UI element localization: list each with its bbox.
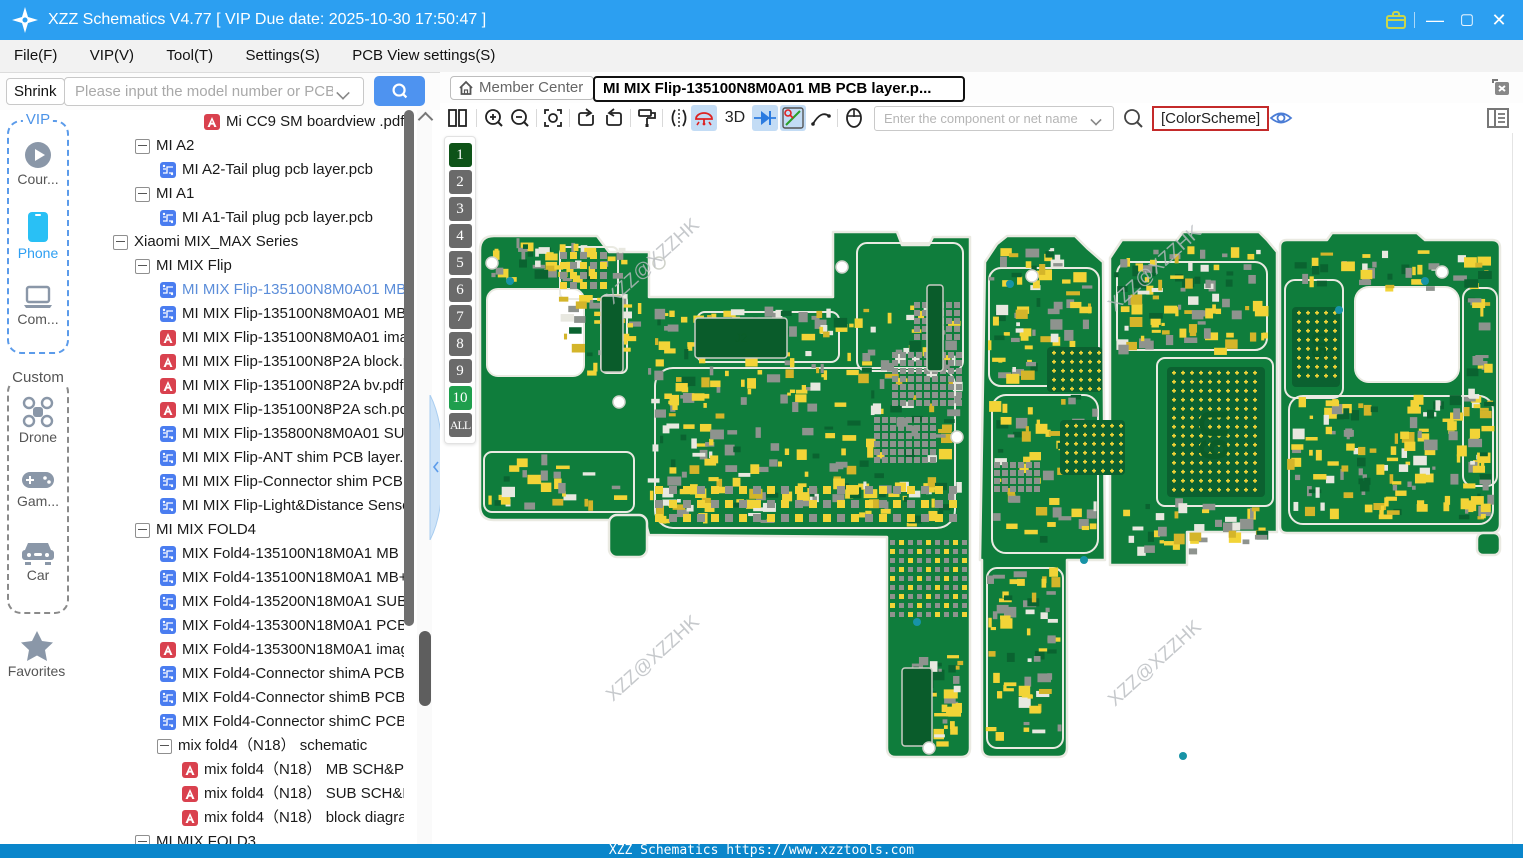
search-button[interactable] (374, 76, 425, 106)
laptop-icon (22, 284, 54, 310)
tree-item-label: MI MIX Flip-135100N8P2A block.pdf (182, 350, 404, 374)
member-center-label: Member Center (479, 79, 583, 96)
collapse-box-icon[interactable] (157, 739, 172, 754)
tree-item-label: Mi CC9 SM boardview .pdf (226, 110, 404, 134)
pdf-file-icon (182, 762, 198, 778)
pcb-file-icon (160, 714, 176, 730)
tree-file-row[interactable]: MI MIX Flip-135100N8M0A01 image.pdf (75, 326, 404, 350)
drone-icon (22, 396, 54, 428)
close-document-icon[interactable] (1490, 78, 1512, 98)
shrink-button[interactable]: Shrink (6, 78, 65, 105)
toolbar-separator (536, 109, 537, 127)
watermark-text: XZZ@XZZHK (602, 611, 704, 705)
tree-file-row[interactable]: MI A2-Tail plug pcb layer.pcb (75, 158, 404, 182)
tree-file-row[interactable]: MIX Fold4-Connector shimC PCB layer.pcb (75, 710, 404, 734)
status-bar: XZZ Schematics https://www.xzztools.com (0, 844, 1523, 858)
menu-pcb-view-settings[interactable]: PCB View settings(S) (338, 40, 509, 72)
tree-item-label: MI A2-Tail plug pcb layer.pcb (182, 158, 373, 182)
titlebar-separator (1414, 12, 1415, 28)
menu-bar: File(F) VIP(V) Tool(T) Settings(S) PCB V… (0, 40, 1523, 73)
category-sidebar: VIP Cour... Phone Com (0, 110, 76, 844)
tree-file-row[interactable]: MI MIX Flip-135100N8P2A sch.pdf (75, 398, 404, 422)
layer-button-7[interactable]: 7 (449, 305, 472, 329)
chip-label-u5: U5 (1307, 332, 1329, 358)
tree-item-label: MIX Fold4-135300N18M0A1 PCB layer.pcb (182, 614, 404, 638)
tree-file-row[interactable]: mix fold4（N18） MB SCH&PCB (75, 758, 404, 782)
menu-tool[interactable]: Tool(T) (152, 40, 227, 72)
tree-item-label: MI A2 (156, 134, 194, 158)
sidebar-item-phone[interactable]: Phone (9, 210, 67, 261)
tree-folder-row[interactable]: MI MIX Flip (75, 254, 404, 278)
measure-icon[interactable] (780, 105, 806, 131)
gamepad-icon (20, 468, 56, 492)
model-search-box (64, 77, 364, 106)
zoom-in-icon[interactable] (481, 105, 507, 131)
layer-button-2[interactable]: 2 (449, 170, 472, 194)
mirror-flip-icon[interactable] (666, 105, 692, 131)
pcb-file-icon (160, 618, 176, 634)
tree-folder-row[interactable]: MI MIX FOLD3 (75, 830, 404, 844)
pdf-file-icon (160, 354, 176, 370)
sidebar-item-car[interactable]: Car (9, 538, 67, 583)
tree-file-row[interactable]: MI MIX Flip-135800N8M0A01 SUB PCB layer.… (75, 422, 404, 446)
tree-file-row[interactable]: MI MIX Flip-Connector shim PCB layer.pcb (75, 470, 404, 494)
tree-item-label: MI MIX Flip-135800N8M0A01 SUB PCB layer.… (182, 422, 404, 446)
pcb-file-icon (160, 450, 176, 466)
collapse-box-icon[interactable] (135, 139, 150, 154)
collapse-box-icon[interactable] (135, 259, 150, 274)
minimize-button[interactable]: — (1420, 0, 1450, 40)
sidebar-item-label: Favorites (0, 663, 73, 679)
toolbar-separator (630, 109, 631, 127)
menu-file[interactable]: File(F) (0, 40, 71, 72)
pcb-canvas[interactable]: XZZ@XZZHKXZZ@XZZHKXZZ@XZZHKXZZ@XZZHKU9U5… (440, 133, 1523, 844)
tree-file-row[interactable]: MI MIX Flip-135100N8M0A01 MB PCB layer.p… (75, 278, 404, 302)
layer-button-3[interactable]: 3 (449, 197, 472, 221)
pcb-file-icon (160, 306, 176, 322)
tree-item-label: MI MIX FOLD3 (156, 830, 256, 844)
tree-file-row[interactable]: MI MIX Flip-ANT shim PCB layer.pcb (75, 446, 404, 470)
tree-item-label: MIX Fold4-Connector shimC PCB layer.pcb (182, 710, 404, 734)
tree-item-label: Xiaomi MIX_MAX Series (134, 230, 298, 254)
sidebar-item-label: Gam... (9, 493, 67, 509)
pcb-file-icon (160, 570, 176, 586)
tree-folder-row[interactable]: mix fold4（N18） schematic (75, 734, 404, 758)
pdf-file-icon (204, 114, 220, 130)
chip-label-u9: U9 (1191, 409, 1235, 460)
tree-item-label: MIX Fold4-Connector shimB PCB layer.pcb (182, 686, 404, 710)
diode-direction-icon[interactable] (752, 105, 778, 131)
custom-group: Custom Drone Gam... (7, 378, 69, 614)
tree-item-label: mix fold4（N18） schematic (178, 734, 367, 758)
vip-group: VIP Cour... Phone Com (7, 120, 69, 354)
tree-item-label: MI MIX Flip (156, 254, 232, 278)
pcb-file-icon (160, 594, 176, 610)
tree-item-label: MIX Fold4-135100N18M0A1 MB PCB layer.pcb (182, 542, 404, 566)
vip-group-label: VIP (23, 111, 53, 128)
pdf-file-icon (160, 330, 176, 346)
member-center-button[interactable]: Member Center (450, 76, 594, 100)
tree-item-label: MI MIX Flip-135100N8M0A01 MB PCB layer.p… (182, 278, 404, 302)
car-icon (20, 538, 56, 566)
watermark-text: XZZ@XZZHK (1104, 616, 1206, 710)
net-search-box (874, 106, 1114, 131)
collapse-box-icon[interactable] (135, 187, 150, 202)
close-button[interactable]: ✕ (1484, 0, 1514, 40)
tree-item-label: MI A1-Tail plug pcb layer.pcb (182, 206, 373, 230)
pcb-file-icon (160, 666, 176, 682)
pdf-file-icon (160, 642, 176, 658)
sidebar-item-label: Drone (9, 429, 67, 445)
file-tree: Mi CC9 SM boardview .pdfMI A2MI A2-Tail … (75, 110, 404, 844)
tree-folder-row[interactable]: MI A2 (75, 134, 404, 158)
rotate-right-icon[interactable] (601, 105, 627, 131)
pcb-file-icon (160, 690, 176, 706)
pdf-file-icon (160, 378, 176, 394)
pcb-file-icon (160, 162, 176, 178)
title-bar: XZZ Schematics V4.77 [ VIP Due date: 202… (0, 0, 1523, 40)
tree-file-row[interactable]: MIX Fold4-135100N18M0A1 MB+SUB PCB layer… (75, 566, 404, 590)
sidebar-item-favorites[interactable]: Favorites (0, 630, 73, 679)
eye-visibility-icon[interactable] (1268, 105, 1294, 131)
layer-button-6[interactable]: 6 (449, 278, 472, 302)
collapse-box-icon[interactable] (135, 835, 150, 845)
custom-group-label: Custom (9, 369, 67, 386)
zoom-out-icon[interactable] (507, 105, 533, 131)
color-scheme-button[interactable]: [ColorScheme] (1152, 106, 1269, 131)
tree-item-label: MI MIX Flip-Connector shim PCB layer.pcb (182, 470, 404, 494)
play-icon (23, 140, 53, 170)
app-window: XZZ Schematics V4.77 [ VIP Due date: 202… (0, 0, 1523, 858)
tree-item-label: MI MIX Flip-135100N8M0A01 MB+SUB PCB lay… (182, 302, 404, 326)
layer-button-5[interactable]: 5 (449, 251, 472, 275)
tree-item-label: MIX Fold4-135300N18M0A1 image.pdf (182, 638, 404, 662)
component-list-panel-icon[interactable] (1486, 106, 1510, 130)
tree-file-row[interactable]: MIX Fold4-135200N18M0A1 SUB PCB layer.pc… (75, 590, 404, 614)
tree-item-label: MI MIX Flip-Light&Distance Sensor PCB la… (182, 494, 404, 518)
tree-item-label: mix fold4（N18） block diagram (204, 806, 404, 830)
pdf-file-icon (182, 786, 198, 802)
3d-view-button[interactable]: 3D (720, 105, 750, 131)
collapse-box-icon[interactable] (113, 235, 128, 250)
tree-item-label: mix fold4（N18） SUB SCH&PCB (204, 782, 404, 806)
pcb-file-icon (160, 546, 176, 562)
search-icon (389, 80, 411, 102)
tree-file-row[interactable]: mix fold4（N18） SUB SCH&PCB (75, 782, 404, 806)
tree-folder-row[interactable]: MI MIX FOLD4 (75, 518, 404, 542)
paint-roller-icon[interactable] (634, 105, 660, 131)
tree-item-label: MIX Fold4-Connector shimA PCB layer.pcb (182, 662, 404, 686)
tree-file-row[interactable]: MI MIX Flip-135100N8P2A block.pdf (75, 350, 404, 374)
tree-item-label: MIX Fold4-135200N18M0A1 SUB PCB layer.pc… (182, 590, 404, 614)
layer-button-9[interactable]: 9 (449, 359, 472, 383)
maximize-button[interactable]: ▢ (1452, 0, 1482, 40)
right-panel-divider (1512, 133, 1513, 844)
window-title: XZZ Schematics V4.77 [ VIP Due date: 202… (48, 0, 486, 40)
net-search-go-icon[interactable] (1120, 105, 1146, 131)
layer-button-8[interactable]: 8 (449, 332, 472, 356)
tree-file-row[interactable]: MIX Fold4-Connector shimA PCB layer.pcb (75, 662, 404, 686)
layer-button-1[interactable]: 1 (449, 143, 472, 167)
menu-settings[interactable]: Settings(S) (232, 40, 334, 72)
chevron-down-icon[interactable] (1090, 114, 1101, 125)
toolbar-separator (569, 109, 570, 127)
tree-item-label: MI MIX Flip-135100N8M0A01 image.pdf (182, 326, 404, 350)
tree-file-row[interactable]: MIX Fold4-135100N18M0A1 MB PCB layer.pcb (75, 542, 404, 566)
sidebar-item-label: Cour... (9, 171, 67, 187)
toolbar-separator (476, 109, 477, 127)
curve-tool-icon[interactable] (808, 105, 834, 131)
vip-briefcase-icon[interactable] (1384, 8, 1408, 32)
app-logo-icon (12, 7, 38, 33)
phone-icon (25, 210, 51, 244)
net-search-input[interactable] (882, 107, 1084, 130)
pdf-file-icon (182, 810, 198, 826)
sidebar-item-label: Com... (9, 311, 67, 327)
tree-file-row[interactable]: MIX Fold4-Connector shimB PCB layer.pcb (75, 686, 404, 710)
tree-file-row[interactable]: MI A1-Tail plug pcb layer.pcb (75, 206, 404, 230)
tree-item-label: MI MIX Flip-135100N8P2A sch.pdf (182, 398, 404, 422)
star-icon (20, 630, 54, 662)
sidebar-item-computer[interactable]: Com... (9, 284, 67, 327)
layer-button-all[interactable]: ALL (449, 413, 472, 437)
pcb-file-icon (160, 282, 176, 298)
panel-scrollbar-thumb[interactable] (419, 631, 431, 706)
connector-label-j2: J2 (735, 331, 748, 345)
tree-file-row[interactable]: MI MIX Flip-135100N8M0A01 MB+SUB PCB lay… (75, 302, 404, 326)
tree-item-label: MI MIX Flip-135100N8P2A bv.pdf (182, 374, 404, 398)
pcb-file-icon (160, 210, 176, 226)
sidebar-item-game[interactable]: Gam... (9, 468, 67, 509)
layer-button-4[interactable]: 4 (449, 224, 472, 248)
model-search-input[interactable] (73, 78, 335, 105)
pdf-file-icon (160, 402, 176, 418)
sidebar-item-label: Phone (9, 245, 67, 261)
tree-item-label: MI MIX FOLD4 (156, 518, 256, 542)
mouse-icon[interactable] (841, 105, 867, 131)
lamp-highlight-icon[interactable] (691, 105, 717, 131)
tree-file-row[interactable]: MIX Fold4-135300N18M0A1 image.pdf (75, 638, 404, 662)
tree-scrollbar-thumb[interactable] (404, 110, 414, 626)
document-tab[interactable]: MI MIX Flip-135100N8M0A01 MB PCB layer.p… (593, 76, 965, 102)
toolbar-separator (662, 109, 663, 127)
tree-file-row[interactable]: MI MIX Flip-Light&Distance Sensor PCB la… (75, 494, 404, 518)
tree-item-label: MI A1 (156, 182, 194, 206)
tree-item-label: MIX Fold4-135100N18M0A1 MB+SUB PCB layer… (182, 566, 404, 590)
rotate-left-icon[interactable] (573, 105, 599, 131)
tree-file-row[interactable]: Mi CC9 SM boardview .pdf (75, 110, 404, 134)
pcb-file-icon (160, 426, 176, 442)
pcb-board-image: XZZ@XZZHKXZZ@XZZHKXZZ@XZZHKXZZ@XZZHKU9U5… (440, 133, 1523, 844)
chevron-down-icon[interactable] (336, 86, 350, 100)
tree-item-label: mix fold4（N18） MB SCH&PCB (204, 758, 404, 782)
pcb-file-icon (160, 498, 176, 514)
tree-file-row[interactable]: MI MIX Flip-135100N8P2A bv.pdf (75, 374, 404, 398)
home-icon (458, 80, 474, 96)
tree-folder-row[interactable]: Xiaomi MIX_MAX Series (75, 230, 404, 254)
sidebar-item-drone[interactable]: Drone (9, 396, 67, 445)
split-view-icon[interactable] (445, 105, 471, 131)
toolbar-separator (837, 109, 838, 127)
layer-selector: 12345678910ALL (444, 136, 476, 444)
library-search-bar: Shrink (0, 73, 441, 110)
viewer-header: Member Center MI MIX Flip-135100N8M0A01 … (440, 72, 1523, 104)
pcb-toolbar: 3D (440, 103, 1523, 134)
layer-button-10[interactable]: 10 (449, 386, 472, 410)
sidebar-item-label: Car (9, 567, 67, 583)
pcb-file-icon (160, 474, 176, 490)
collapse-box-icon[interactable] (135, 523, 150, 538)
tree-folder-row[interactable]: MI A1 (75, 182, 404, 206)
menu-vip[interactable]: VIP(V) (76, 40, 148, 72)
tree-item-label: MI MIX Flip-ANT shim PCB layer.pcb (182, 446, 404, 470)
fit-view-icon[interactable] (540, 105, 566, 131)
tree-file-row[interactable]: MIX Fold4-135300N18M0A1 PCB layer.pcb (75, 614, 404, 638)
tree-file-row[interactable]: mix fold4（N18） block diagram (75, 806, 404, 830)
sidebar-item-course[interactable]: Cour... (9, 140, 67, 187)
